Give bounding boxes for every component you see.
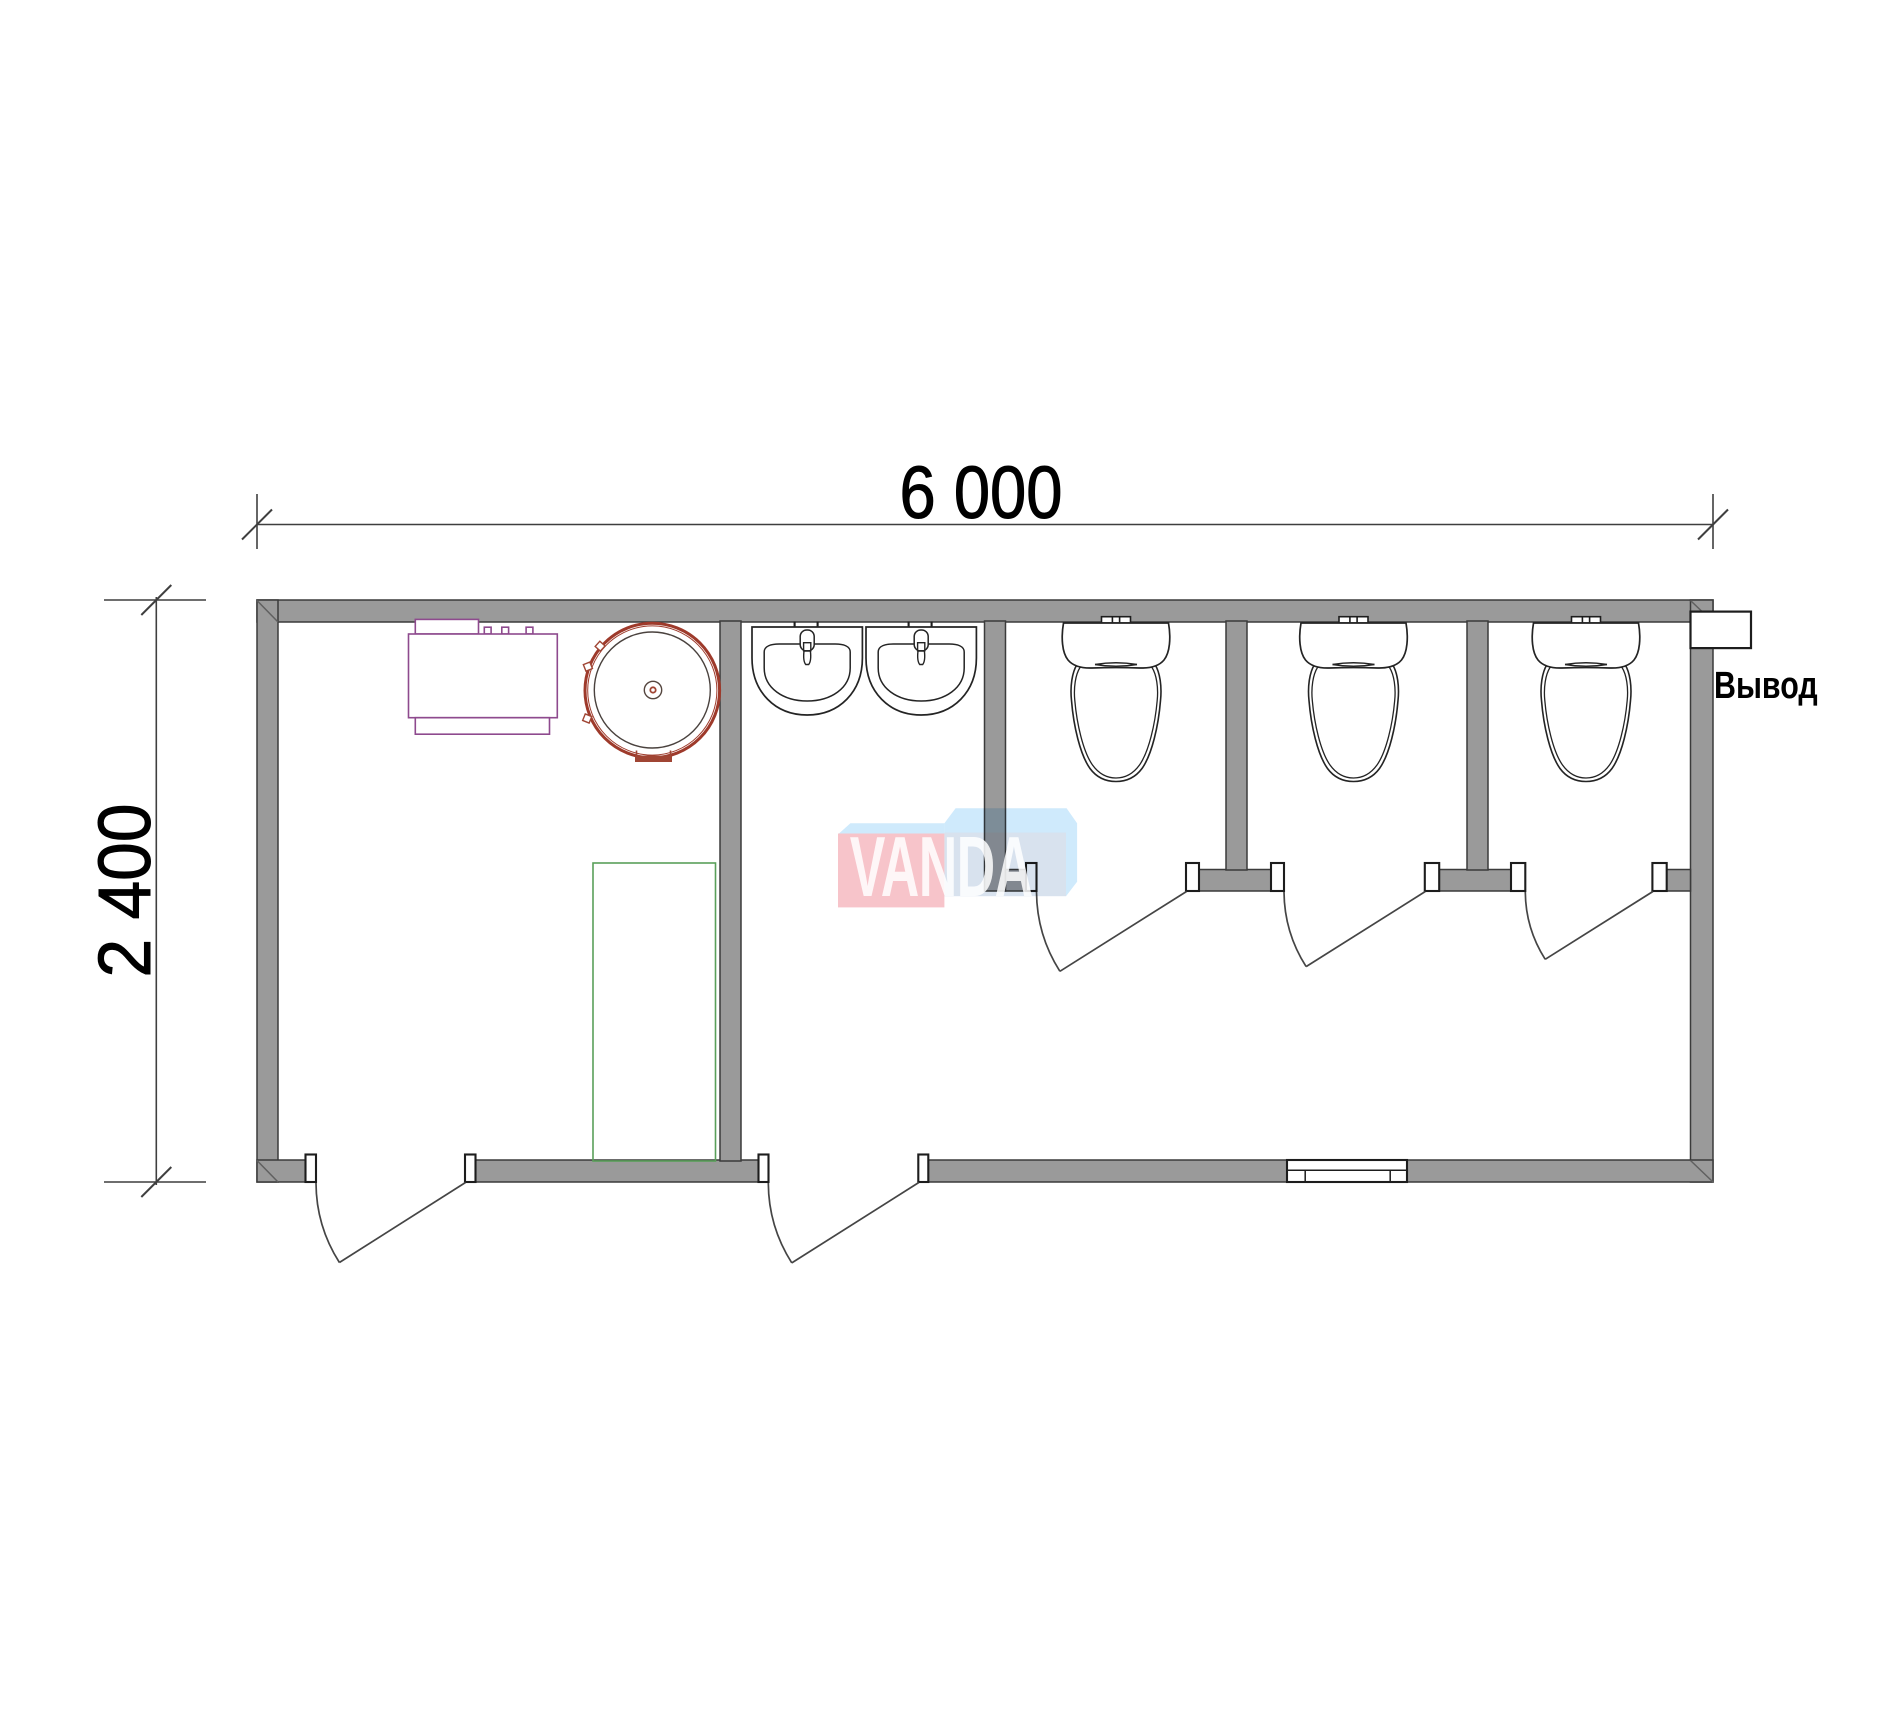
svg-text:6 000: 6 000 [900,451,1063,534]
svg-text:Вывод: Вывод [1714,665,1818,707]
svg-text:VANDA: VANDA [850,821,1033,916]
svg-text:2 400: 2 400 [84,803,166,977]
